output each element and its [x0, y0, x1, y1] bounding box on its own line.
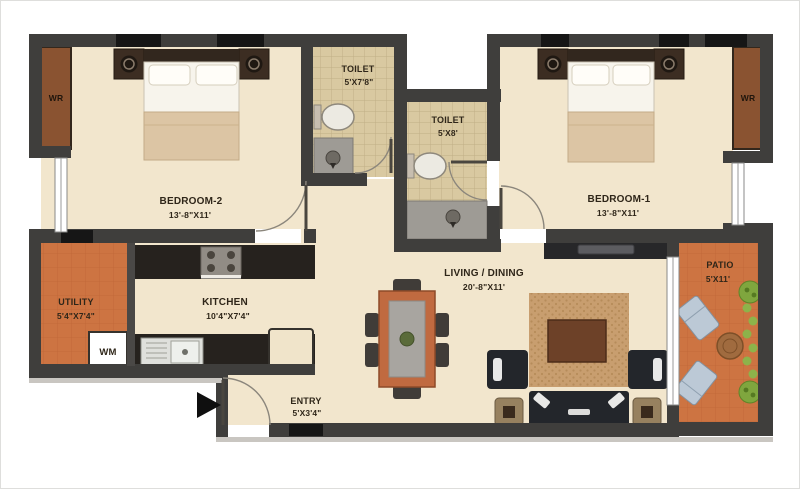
lamp-icon [545, 56, 562, 73]
dining-chair [435, 313, 449, 337]
bed-1 [568, 49, 654, 162]
living-label: LIVING / DINING [444, 268, 524, 279]
shower-head-icon [326, 151, 340, 165]
lamp-icon [661, 56, 678, 73]
coffee-table [548, 320, 606, 362]
dining-chair [365, 313, 379, 337]
utility-label: UTILITY [58, 297, 93, 307]
shower-head-icon [446, 210, 460, 224]
kitchen-label: KITCHEN [202, 297, 248, 308]
kitchen-dims: 10'4"X7'4" [206, 311, 250, 321]
wardrobe-right-label: WR [741, 93, 756, 103]
blanket [144, 112, 239, 160]
headboard [144, 49, 239, 62]
window-segment [289, 424, 323, 436]
bed-2 [144, 49, 239, 160]
toilet1-label: TOILET [341, 64, 374, 74]
wardrobe-left-label: WR [49, 93, 64, 103]
entry-dims: 5'X3'4" [293, 408, 322, 418]
toilet2-label: TOILET [431, 115, 464, 125]
toilet-bowl [414, 153, 446, 179]
toilet-tank [407, 154, 414, 178]
dining-chair [365, 343, 379, 367]
dining-chair [435, 343, 449, 367]
sofa [529, 391, 629, 428]
utility-dims: 5'4"X7'4" [57, 311, 95, 321]
window-segment [659, 34, 689, 47]
toilet-tank [314, 105, 321, 129]
bedroom2-label: BEDROOM-2 [160, 196, 223, 207]
toilet-bowl [322, 104, 354, 130]
sink-icon [141, 338, 203, 366]
patio-label: PATIO [706, 260, 733, 270]
pillow [149, 65, 190, 85]
window-segment [217, 34, 264, 47]
patio-dims: 5'X11' [706, 274, 730, 284]
window-segment [541, 34, 569, 47]
stove-icon [201, 247, 241, 276]
headboard [568, 49, 654, 62]
window-segment [116, 34, 161, 47]
patio-table [717, 333, 743, 359]
lamp-icon [246, 56, 263, 73]
lamp-icon [121, 56, 138, 73]
pillow [196, 65, 237, 85]
bedroom1-label: BEDROOM-1 [588, 194, 651, 205]
bedroom2-dims: 13'-8"X11' [169, 210, 211, 220]
plant-icon [739, 281, 761, 303]
blanket [568, 112, 654, 162]
bedroom1-dims: 13'-8"X11' [597, 208, 639, 218]
entry-label: ENTRY [290, 396, 321, 406]
toilet2-dims: 5'X8' [438, 128, 458, 138]
toilet1-dims: 5'X7'8" [345, 77, 374, 87]
floor-plan-canvas: WM [1, 1, 800, 489]
floor-plan: WM [0, 0, 800, 489]
utility-kitchen-divider [127, 243, 135, 366]
living-dims: 20'-8"X11' [463, 282, 505, 292]
tv-icon [578, 245, 634, 254]
plant-icon [739, 381, 761, 403]
centerpiece [400, 332, 414, 346]
pillow [613, 65, 650, 85]
washing-machine-label: WM [99, 347, 116, 358]
pillow [572, 65, 609, 85]
window-segment [705, 34, 747, 47]
